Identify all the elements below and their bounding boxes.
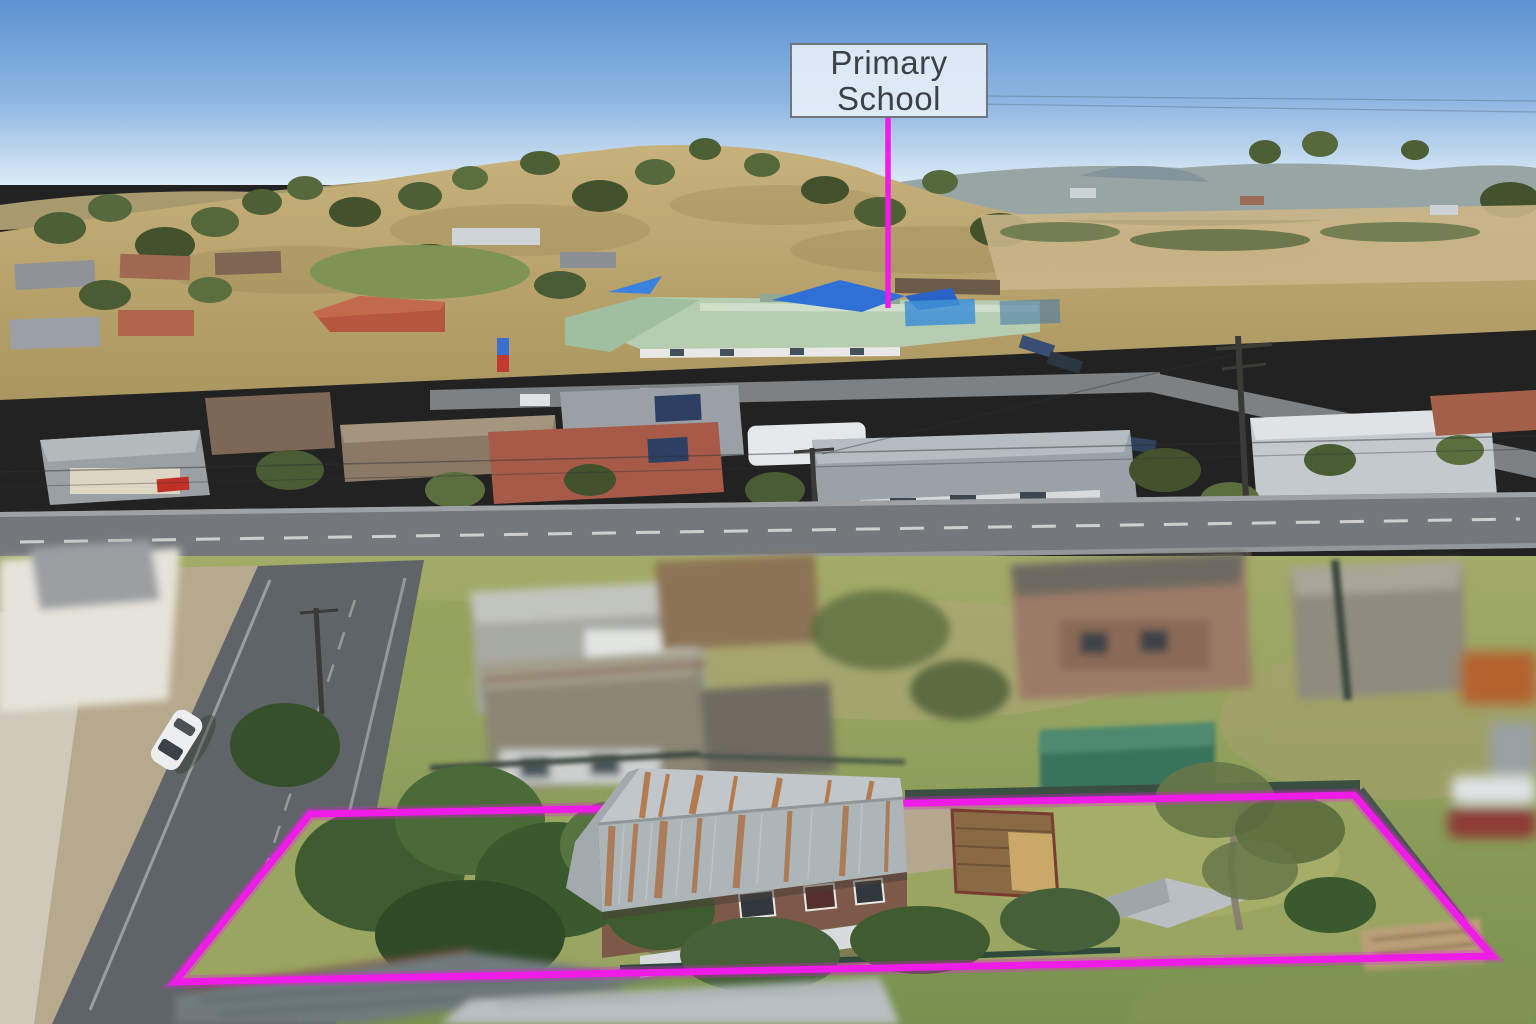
flat-roof-annex: [903, 806, 956, 874]
school-court: [1000, 299, 1061, 325]
primary-school-label: Primary School: [790, 43, 988, 118]
flag-banner-lower: [497, 355, 509, 372]
flag-banner: [497, 338, 509, 355]
label-line-2: School: [837, 81, 941, 117]
school-pool: [905, 299, 976, 326]
label-line-1: Primary: [830, 45, 947, 81]
school-oval: [310, 245, 530, 299]
pergola: [952, 810, 1058, 898]
aerial-photo: Primary School: [0, 0, 1536, 1024]
photo-canvas: [0, 0, 1536, 1024]
